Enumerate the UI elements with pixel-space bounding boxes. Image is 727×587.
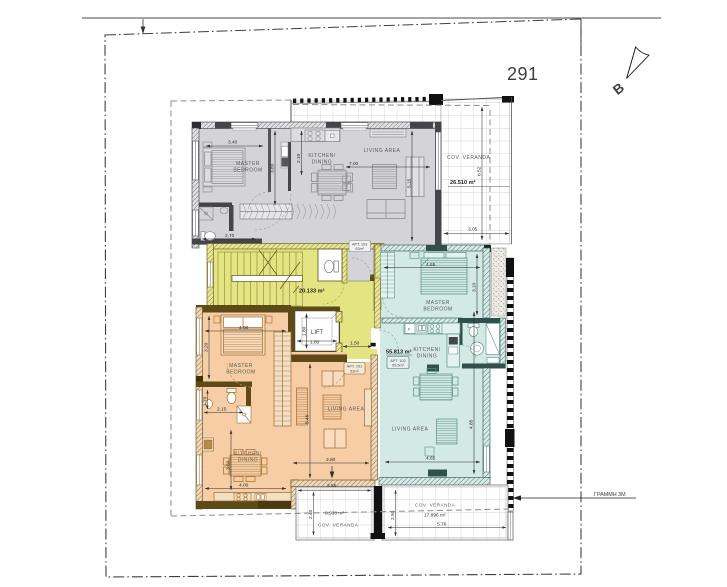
- svg-text:1.80: 1.80: [302, 326, 308, 336]
- svg-text:3.80: 3.80: [270, 163, 276, 173]
- svg-text:APT. 103: APT. 103: [352, 242, 367, 246]
- svg-text:4.65: 4.65: [426, 456, 436, 462]
- svg-text:4.65: 4.65: [426, 262, 436, 268]
- svg-text:8.938 m²: 8.938 m²: [325, 511, 344, 517]
- svg-text:BEDROOM: BEDROOM: [233, 168, 262, 174]
- svg-text:MASTER: MASTER: [236, 161, 260, 167]
- svg-text:COV. VERANDA: COV. VERANDA: [447, 155, 490, 161]
- svg-text:3.80: 3.80: [326, 457, 336, 463]
- svg-text:5.76: 5.76: [437, 522, 447, 528]
- svg-text:2.40: 2.40: [308, 509, 314, 519]
- svg-text:1.80: 1.80: [310, 340, 320, 346]
- svg-text:2.10: 2.10: [296, 153, 302, 163]
- svg-text:MASTER: MASTER: [229, 363, 253, 369]
- svg-text:APT. 101: APT. 101: [347, 365, 362, 369]
- svg-text:55.813 m²: 55.813 m²: [386, 349, 412, 356]
- svg-text:5.45: 5.45: [305, 414, 311, 424]
- svg-text:2.70: 2.70: [225, 233, 235, 239]
- svg-text:COV. VERANDA: COV. VERANDA: [318, 523, 359, 528]
- svg-text:MASTER: MASTER: [426, 300, 450, 306]
- svg-text:DINING: DINING: [238, 458, 259, 464]
- svg-text:3.55: 3.55: [327, 483, 337, 489]
- svg-text:DINING: DINING: [417, 354, 438, 360]
- svg-text:APT. 102: APT. 102: [390, 359, 405, 363]
- svg-text:COV. VERANDA: COV. VERANDA: [415, 503, 456, 508]
- svg-text:KITCHEN/: KITCHEN/: [234, 451, 261, 457]
- svg-text:53m²: 53m²: [350, 369, 359, 373]
- svg-text:7.00: 7.00: [349, 161, 359, 167]
- svg-text:291: 291: [507, 64, 539, 84]
- svg-text:BEDROOM: BEDROOM: [226, 370, 255, 376]
- svg-text:KITCHEN/: KITCHEN/: [308, 153, 335, 159]
- svg-text:3.40: 3.40: [228, 140, 238, 146]
- svg-text:26.510 m²: 26.510 m²: [450, 179, 476, 186]
- svg-text:4.00: 4.00: [239, 483, 249, 489]
- svg-text:BEDROOM: BEDROOM: [423, 307, 452, 313]
- svg-text:2.15: 2.15: [217, 407, 227, 413]
- svg-text:KITCHEN/: KITCHEN/: [413, 347, 440, 353]
- svg-text:5.15: 5.15: [407, 178, 413, 188]
- svg-text:3.10: 3.10: [472, 282, 478, 292]
- svg-text:3.20: 3.20: [204, 342, 210, 352]
- svg-text:4.00: 4.00: [239, 325, 249, 331]
- svg-text:55.5m²: 55.5m²: [392, 364, 405, 368]
- svg-text:20.133 m²: 20.133 m²: [299, 288, 325, 295]
- svg-text:6.52: 6.52: [477, 166, 483, 176]
- svg-text:63m²: 63m²: [355, 247, 364, 251]
- svg-text:LIVING AREA: LIVING AREA: [328, 407, 365, 413]
- svg-text:1.70: 1.70: [203, 396, 209, 406]
- svg-text:LIVING AREA: LIVING AREA: [364, 148, 401, 154]
- svg-text:4.85: 4.85: [469, 419, 475, 429]
- svg-text:LIVING AREA: LIVING AREA: [392, 427, 429, 433]
- svg-text:1.50: 1.50: [350, 341, 360, 347]
- svg-text:ΓΡΑΜΜΗ 3Μ: ΓΡΑΜΜΗ 3Μ: [594, 492, 626, 498]
- svg-text:17.896 m²: 17.896 m²: [424, 513, 446, 519]
- svg-text:3.05: 3.05: [468, 227, 478, 233]
- svg-text:LIFT: LIFT: [311, 330, 324, 336]
- svg-text:DINING: DINING: [312, 160, 333, 166]
- svg-text:3.60: 3.60: [226, 460, 232, 470]
